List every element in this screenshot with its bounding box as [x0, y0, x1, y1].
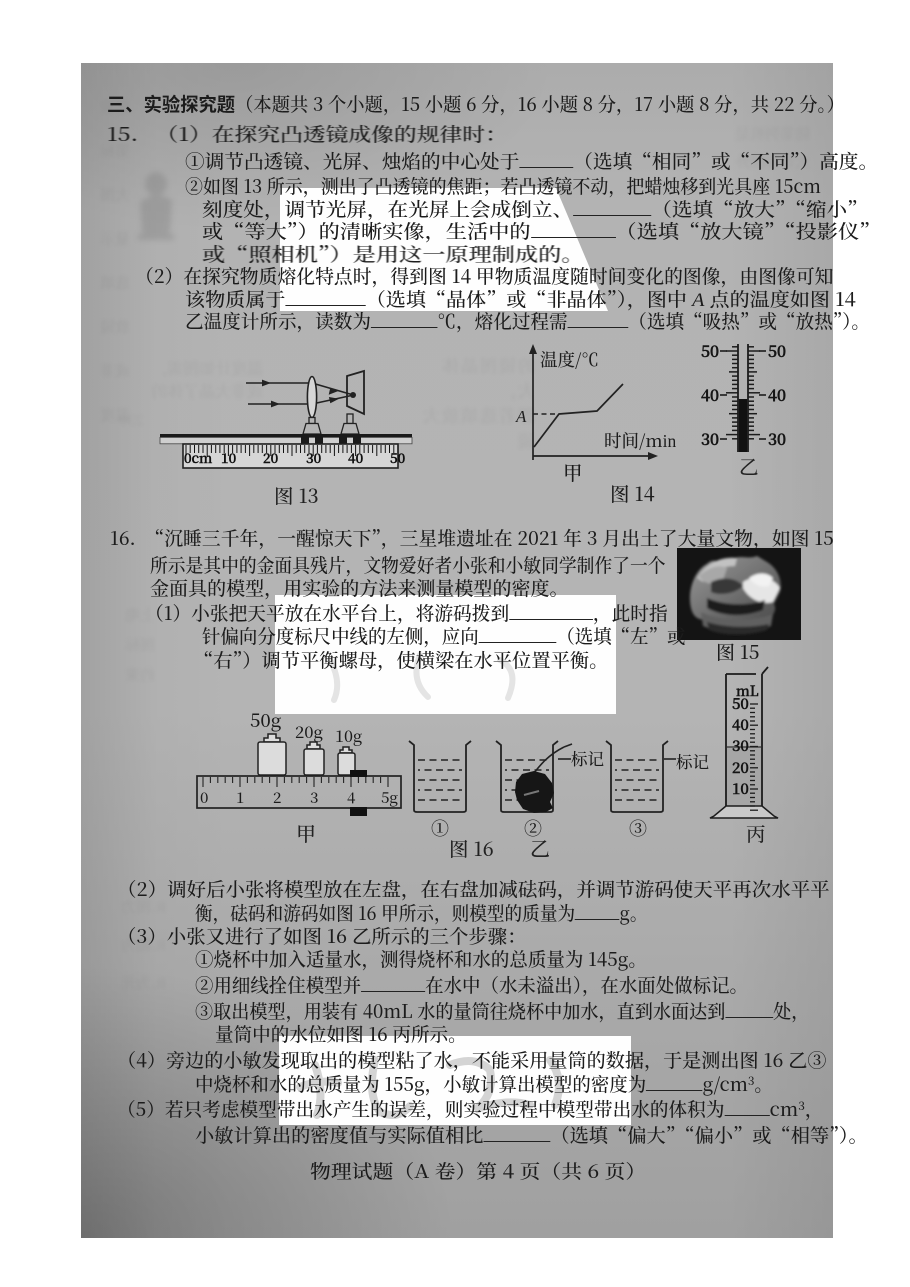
svg-text:标记: 标记 — [571, 746, 604, 770]
svg-text:图 13: 图 13 — [274, 481, 319, 509]
svg-text:40: 40 — [701, 383, 719, 406]
svg-text:A: A — [515, 407, 527, 426]
svg-text:30: 30 — [768, 427, 786, 450]
svg-text:温度/℃: 温度/℃ — [540, 347, 599, 372]
svg-text:图 16: 图 16 — [449, 834, 494, 862]
svg-text:30: 30 — [732, 735, 749, 756]
svg-text:0cm: 0cm — [184, 447, 213, 467]
svg-text:甲: 甲 — [563, 458, 583, 486]
svg-text:50: 50 — [701, 339, 719, 362]
svg-text:2: 2 — [273, 787, 281, 808]
svg-text:10: 10 — [221, 447, 237, 467]
svg-text:30: 30 — [306, 447, 322, 467]
svg-text:50g: 50g — [250, 707, 282, 733]
svg-text:50: 50 — [768, 339, 786, 362]
svg-text:③: ③ — [629, 815, 647, 841]
svg-text:30: 30 — [701, 427, 719, 450]
svg-text:3: 3 — [310, 787, 318, 808]
svg-text:甲: 甲 — [296, 818, 316, 847]
svg-text:丙: 丙 — [746, 819, 766, 847]
svg-text:乙: 乙 — [530, 833, 550, 862]
svg-text:①: ① — [431, 815, 449, 841]
svg-text:乙: 乙 — [739, 452, 759, 480]
svg-text:图 14: 图 14 — [610, 479, 655, 507]
svg-text:40: 40 — [768, 383, 786, 406]
svg-text:40: 40 — [732, 714, 749, 735]
svg-text:4: 4 — [347, 787, 356, 808]
svg-text:10: 10 — [732, 778, 749, 799]
svg-text:10g: 10g — [335, 724, 362, 747]
svg-text:5g: 5g — [381, 787, 398, 808]
svg-text:50: 50 — [732, 693, 749, 714]
svg-text:时间/min: 时间/min — [604, 428, 676, 453]
svg-text:20: 20 — [732, 757, 749, 778]
svg-text:50: 50 — [390, 447, 406, 467]
svg-text:20: 20 — [263, 447, 279, 467]
svg-text:40: 40 — [348, 447, 364, 467]
svg-text:0: 0 — [200, 787, 208, 808]
svg-text:20g: 20g — [295, 719, 324, 743]
svg-text:1: 1 — [236, 787, 244, 808]
